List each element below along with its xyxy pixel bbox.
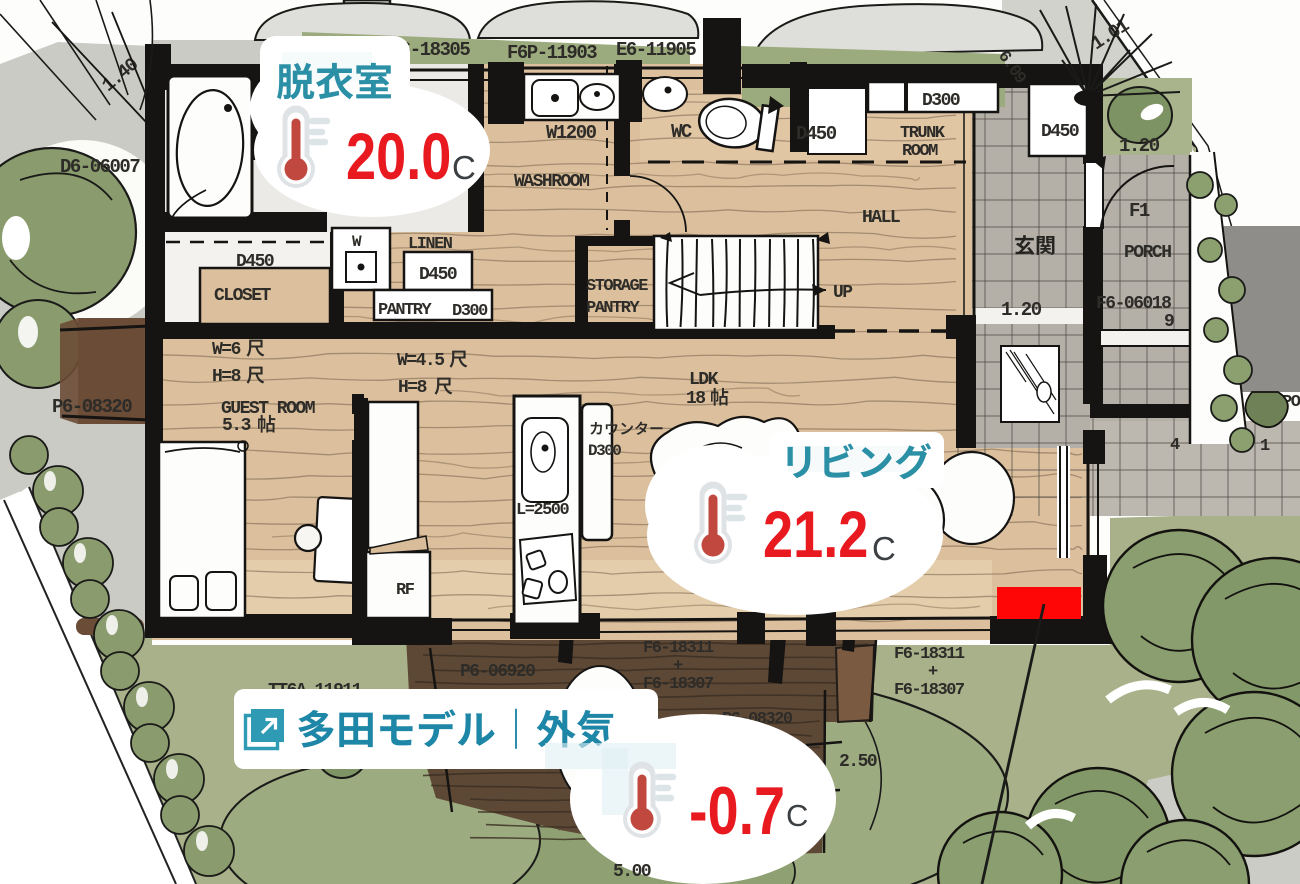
svg-text:D300: D300 (922, 91, 960, 111)
svg-text:F6-18311: F6-18311 (643, 639, 714, 658)
svg-text:UP: UP (833, 283, 853, 303)
svg-text:1.20: 1.20 (1001, 299, 1042, 321)
svg-text:C: C (452, 149, 476, 186)
svg-text:HALL: HALL (862, 208, 900, 228)
svg-text:2.50: 2.50 (839, 752, 877, 772)
svg-text:WASHROOM: WASHROOM (514, 172, 589, 192)
svg-text:4: 4 (1170, 436, 1180, 455)
svg-text:H=8: H=8 (212, 367, 241, 387)
svg-text:D6-06007: D6-06007 (60, 156, 140, 178)
svg-text:W1200: W1200 (546, 122, 597, 144)
svg-text:W=4.5: W=4.5 (397, 351, 444, 371)
svg-text:F6-06018: F6-06018 (1096, 294, 1171, 314)
svg-text:D450: D450 (796, 123, 837, 145)
svg-text:9: 9 (1164, 312, 1174, 332)
svg-text:F6P-11903: F6P-11903 (507, 42, 597, 64)
svg-text:20.0: 20.0 (346, 119, 451, 193)
svg-text:CLOSET: CLOSET (214, 286, 272, 306)
svg-text:5.3: 5.3 (222, 416, 251, 436)
svg-text:C: C (786, 798, 808, 833)
svg-text:PANTRY: PANTRY (586, 299, 641, 318)
svg-text:F6-18307: F6-18307 (894, 681, 965, 700)
svg-text:C: C (872, 530, 896, 567)
svg-text:D450: D450 (236, 252, 274, 272)
svg-text:F6-18311: F6-18311 (894, 645, 965, 664)
svg-text:1.20: 1.20 (1119, 135, 1160, 157)
svg-text:D450: D450 (1041, 122, 1079, 142)
svg-text:ROOM: ROOM (902, 142, 938, 161)
svg-text:+: + (928, 663, 938, 682)
svg-text:D450: D450 (419, 265, 457, 285)
svg-text:PORCH: PORCH (1124, 243, 1171, 263)
svg-text:18: 18 (686, 389, 705, 409)
svg-text:5.00: 5.00 (613, 862, 651, 882)
svg-text:D300: D300 (588, 442, 621, 460)
svg-text:E6-11905: E6-11905 (616, 39, 696, 61)
svg-text:+: + (673, 657, 683, 676)
svg-text:RF: RF (396, 581, 415, 600)
svg-text:1: 1 (1260, 437, 1270, 456)
svg-text:H=8: H=8 (398, 378, 427, 398)
svg-text:WC: WC (671, 121, 692, 143)
svg-text:PANTRY: PANTRY (378, 301, 433, 320)
svg-text:STORAGE: STORAGE (586, 277, 648, 296)
svg-text:F1: F1 (1129, 200, 1150, 222)
svg-text:21.2: 21.2 (763, 497, 868, 571)
svg-text:LINEN: LINEN (408, 235, 453, 254)
svg-text:-0.7: -0.7 (689, 774, 785, 849)
svg-text:W=6: W=6 (212, 340, 241, 360)
svg-text:P6-06920: P6-06920 (460, 662, 535, 682)
svg-text:L=2500: L=2500 (516, 501, 570, 520)
svg-text:D300: D300 (452, 302, 488, 321)
svg-text:P6-08320: P6-08320 (52, 396, 132, 418)
svg-text:LDK: LDK (689, 370, 719, 390)
svg-text:TRUNK: TRUNK (900, 124, 946, 143)
